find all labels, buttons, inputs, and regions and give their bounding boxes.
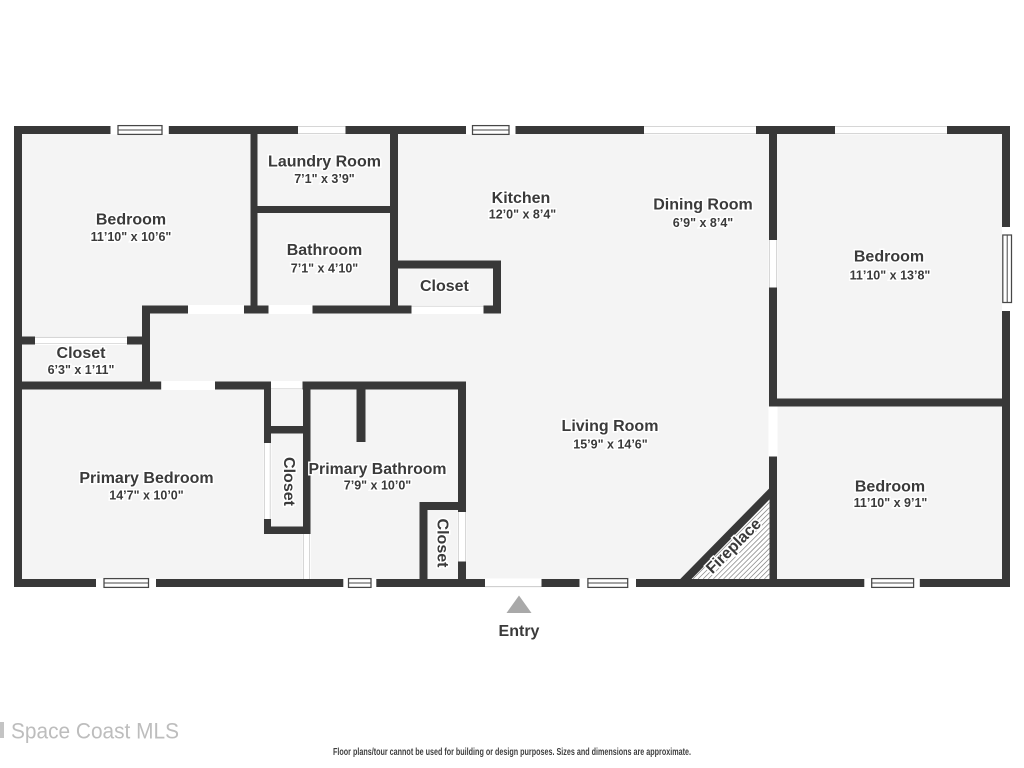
- svg-text:11’10" x 13’8": 11’10" x 13’8": [850, 269, 931, 283]
- svg-text:Living Room: Living Room: [562, 418, 659, 435]
- svg-text:Entry: Entry: [499, 623, 540, 640]
- svg-text:6’9" x 8’4": 6’9" x 8’4": [673, 216, 734, 230]
- svg-text:6’3" x 1’11": 6’3" x 1’11": [48, 363, 115, 377]
- svg-text:Primary Bathroom: Primary Bathroom: [309, 461, 447, 478]
- svg-text:Floor plans/tour cannot be use: Floor plans/tour cannot be used for buil…: [333, 747, 691, 758]
- svg-text:15’9" x 14’6": 15’9" x 14’6": [573, 438, 647, 452]
- svg-text:Space Coast MLS: Space Coast MLS: [11, 719, 179, 744]
- svg-text:Laundry Room: Laundry Room: [268, 154, 381, 171]
- svg-text:Bedroom: Bedroom: [855, 479, 925, 496]
- svg-text:Closet: Closet: [280, 457, 297, 507]
- svg-text:7’1" x 4’10": 7’1" x 4’10": [291, 262, 359, 276]
- svg-text:Bedroom: Bedroom: [96, 212, 166, 229]
- svg-text:Primary Bedroom: Primary Bedroom: [79, 470, 213, 487]
- svg-text:Bathroom: Bathroom: [287, 242, 363, 259]
- svg-text:Closet: Closet: [57, 345, 107, 362]
- svg-text:11’10" x 9’1": 11’10" x 9’1": [854, 496, 928, 510]
- svg-text:7’9" x 10’0": 7’9" x 10’0": [344, 479, 412, 493]
- svg-text:Closet: Closet: [433, 519, 450, 569]
- svg-text:7’1" x 3’9": 7’1" x 3’9": [294, 172, 355, 186]
- svg-text:11’10" x 10’6": 11’10" x 10’6": [91, 230, 172, 244]
- svg-text:Closet: Closet: [420, 278, 470, 295]
- svg-text:12’0" x 8’4": 12’0" x 8’4": [489, 208, 557, 222]
- svg-text:Dining Room: Dining Room: [653, 197, 753, 214]
- svg-text:Bedroom: Bedroom: [854, 249, 924, 266]
- svg-text:Kitchen: Kitchen: [492, 190, 551, 207]
- svg-text:14’7" x 10’0": 14’7" x 10’0": [109, 489, 183, 503]
